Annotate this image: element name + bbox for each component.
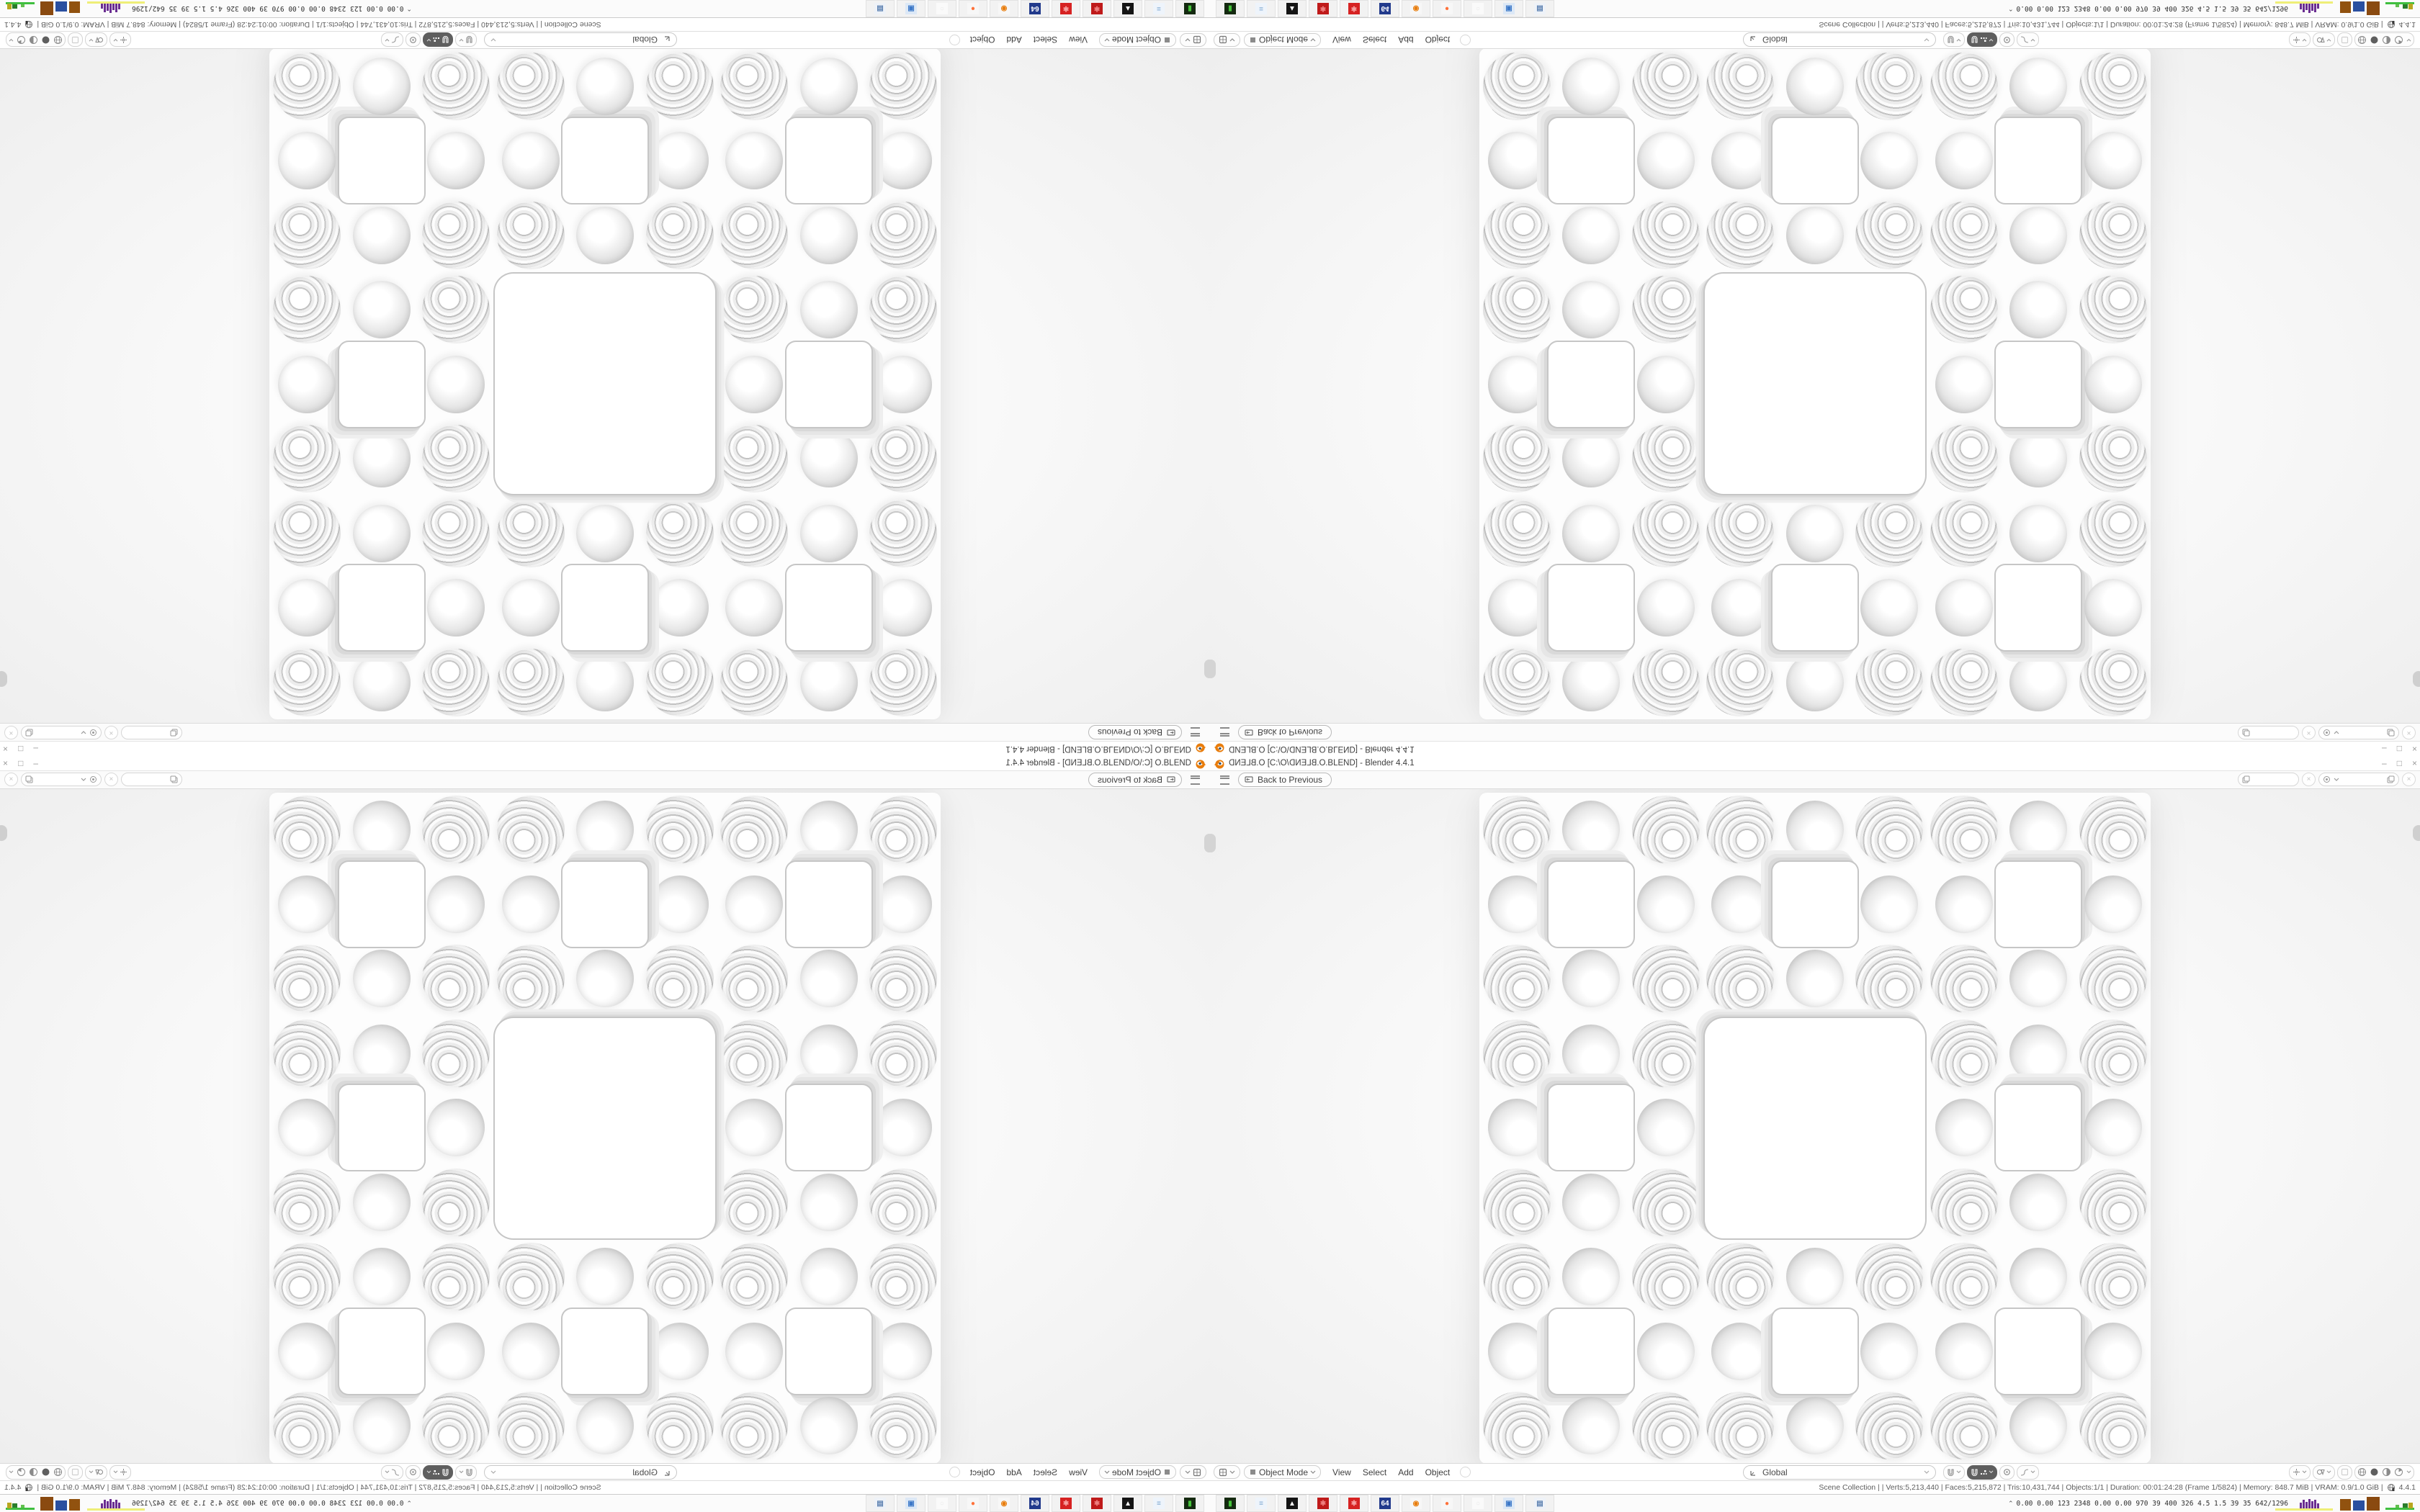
fractal-round-hole <box>353 281 411 338</box>
snap-toggle-button[interactable] <box>1943 1465 1965 1480</box>
firefox-icon[interactable]: ● <box>1433 0 1461 17</box>
view-layer-selector[interactable] <box>2318 773 2399 786</box>
fractal-ringed-hole <box>720 1243 788 1310</box>
menu-view[interactable]: View <box>1332 1467 1351 1477</box>
scene-close-button[interactable]: × <box>104 726 118 739</box>
chevron-down-icon <box>1989 38 1994 42</box>
notepad-icon[interactable]: ≡ <box>1247 1495 1276 1512</box>
calculator-icon[interactable]: ▤ <box>866 0 895 17</box>
notepad-icon-glyph: ≡ <box>1153 1498 1165 1509</box>
menu-add[interactable]: Add <box>1398 35 1413 45</box>
toggle-xray-button[interactable] <box>68 1465 83 1480</box>
fractal-ringed-hole <box>1632 425 1700 492</box>
orientation-label: Global <box>501 35 658 45</box>
snap-increment-icon <box>1980 37 1987 44</box>
blender-app-icon[interactable]: ◉ <box>1402 1495 1430 1512</box>
shading-rendered-icon[interactable] <box>17 35 26 45</box>
fractal-ringed-hole <box>1483 53 1551 120</box>
chevron-down-icon <box>1185 38 1191 42</box>
viewport-3d[interactable] <box>1210 49 2420 723</box>
fractal-round-hole <box>1786 950 1844 1007</box>
photo-app-icon[interactable]: ▲ <box>1113 1495 1142 1512</box>
notepad-icon[interactable]: ≡ <box>1247 0 1276 17</box>
close-button[interactable]: × <box>2412 742 2417 756</box>
sidebar-toggle-tab[interactable] <box>0 825 7 841</box>
scene-selector[interactable] <box>121 773 182 786</box>
shading-rendered-icon[interactable] <box>2394 1467 2403 1477</box>
restore-button[interactable]: □ <box>18 756 23 770</box>
photo-app-icon[interactable]: ▲ <box>1278 1495 1307 1512</box>
fractal-ringed-hole <box>869 649 937 716</box>
fractal-ringed-hole <box>422 1243 490 1310</box>
tray-expand-icon[interactable]: ⌃ <box>407 5 413 13</box>
view-layer-selector[interactable] <box>2318 726 2399 739</box>
scene-selector[interactable] <box>121 726 182 739</box>
transform-orientation-dropdown[interactable]: Global <box>1743 33 1936 48</box>
menu-object[interactable]: Object <box>970 1467 995 1477</box>
chevron-down-icon <box>385 1470 390 1474</box>
floppy-64-icon-glyph: 64 <box>1029 1498 1041 1509</box>
chevron-down-icon <box>385 38 390 42</box>
menu-hamburger-icon[interactable] <box>1220 775 1229 785</box>
fractal-ringed-hole <box>869 1020 937 1087</box>
red-gear2-icon[interactable]: ✱ <box>1052 0 1080 17</box>
sidebar-toggle-tab[interactable] <box>0 671 7 687</box>
menu-view[interactable]: View <box>1069 35 1088 45</box>
green-terminal-icon[interactable]: ▮ <box>1175 0 1204 17</box>
tray-expand-icon[interactable]: ⌃ <box>2008 1500 2014 1508</box>
fractal-ringed-hole <box>1632 1020 1700 1087</box>
proportional-circle-icon <box>2003 1468 2011 1476</box>
red-gear2-icon-glyph: ✱ <box>1348 1498 1360 1509</box>
fractal-round-hole <box>1488 132 1546 189</box>
snap-target-button[interactable] <box>423 1465 453 1480</box>
menu-object[interactable]: Object <box>1425 35 1451 45</box>
toolbar-toggle-tab[interactable] <box>1204 834 1210 852</box>
close-button[interactable]: × <box>2412 756 2417 770</box>
menu-add[interactable]: Add <box>1006 35 1021 45</box>
scene-name-field[interactable] <box>125 775 167 784</box>
show-gizmo-button[interactable] <box>2289 33 2311 48</box>
view-layer-close-button[interactable]: × <box>2402 726 2416 739</box>
menu-select[interactable]: Select <box>1363 35 1386 45</box>
blender-window: O.BLEND [C:\O\O.BLEND.BLEND] - Blender 4… <box>1210 0 2420 756</box>
snap-toggle-button[interactable] <box>455 33 477 48</box>
blender-app-icon[interactable]: ◉ <box>990 0 1018 17</box>
shading-wireframe-icon[interactable] <box>53 35 63 45</box>
fractal-square-hole <box>1773 118 1857 203</box>
menu-select[interactable]: Select <box>1034 35 1057 45</box>
menu-object[interactable]: Object <box>1425 1467 1451 1477</box>
mode-selector[interactable]: Object Mode <box>1099 33 1176 47</box>
proportional-edit-button[interactable] <box>1999 1465 2015 1480</box>
taskbar-app-icons: ▮≡▲✱✱64◉●○▣▤ <box>866 1495 1204 1512</box>
tray-purple-bars <box>2300 4 2319 13</box>
fractal-ringed-hole <box>422 1392 490 1459</box>
fractal-square-hole <box>1549 118 1633 203</box>
fractal-square-hole <box>1773 862 1857 947</box>
proportional-falloff-button[interactable] <box>381 33 403 48</box>
fractal-ringed-hole <box>1706 796 1774 863</box>
fractal-round-hole <box>2009 207 2067 264</box>
fractal-round-hole <box>874 579 932 636</box>
my-computer-icon-glyph: ▣ <box>905 1498 917 1509</box>
ghost-app-icon[interactable]: ○ <box>928 1495 956 1512</box>
menu-hamburger-icon[interactable] <box>1191 775 1200 785</box>
minimize-button[interactable]: – <box>2382 756 2387 770</box>
shading-material-icon[interactable] <box>2382 1467 2391 1477</box>
fractal-center-hole <box>1705 1018 1925 1238</box>
shading-wireframe-icon[interactable] <box>53 1467 63 1477</box>
tray-expand-icon[interactable]: ⌃ <box>2008 5 2014 13</box>
proportional-edit-button[interactable] <box>1999 33 2015 48</box>
menu-add[interactable]: Add <box>1398 1467 1413 1477</box>
transform-orientation-dropdown[interactable]: Global <box>1743 1465 1936 1480</box>
restore-button[interactable]: □ <box>2397 756 2402 770</box>
tray-expand-icon[interactable]: ⌃ <box>407 1500 413 1508</box>
tray-purple-bars <box>101 4 120 13</box>
back-to-previous-button[interactable]: Back to Previous <box>1238 773 1332 787</box>
menu-select[interactable]: Select <box>1363 1467 1386 1477</box>
orientation-axes-icon <box>1749 36 1758 45</box>
fractal-ringed-hole <box>497 500 565 567</box>
snap-toggle-button[interactable] <box>455 1465 477 1480</box>
firefox-icon[interactable]: ● <box>959 1495 987 1512</box>
fractal-round-hole <box>1786 1248 1844 1305</box>
toolbar-toggle-tab[interactable] <box>1210 660 1216 678</box>
my-computer-icon[interactable]: ▣ <box>1494 0 1523 17</box>
transform-orientation-dropdown[interactable]: Global <box>484 33 677 48</box>
calculator-icon[interactable]: ▤ <box>1525 1495 1554 1512</box>
blender-topbar: Back to Previous × <box>0 723 1210 741</box>
mode-selector[interactable]: Object Mode <box>1244 33 1321 47</box>
scene-selector[interactable] <box>2238 726 2299 739</box>
fractal-round-hole <box>353 801 411 858</box>
scene-selector[interactable] <box>2238 773 2299 786</box>
scene-icon <box>170 775 178 783</box>
notepad-icon[interactable]: ≡ <box>1144 1495 1173 1512</box>
sidebar-toggle-tab[interactable] <box>2413 825 2420 841</box>
blender-topbar: Back to Previous × <box>1210 723 2420 741</box>
fractal-square-hole <box>1773 1309 1857 1394</box>
red-gear-icon[interactable]: ✱ <box>1083 1495 1111 1512</box>
floppy-64-icon-glyph: 64 <box>1379 3 1391 14</box>
fractal-ringed-hole <box>1930 1169 1998 1236</box>
calculator-icon[interactable]: ▤ <box>866 1495 895 1512</box>
shading-material-icon[interactable] <box>29 1467 38 1477</box>
editor-type-button[interactable] <box>1180 1465 1206 1479</box>
tray-block-graphs <box>2340 0 2380 15</box>
minimize-button[interactable]: – <box>2382 742 2387 756</box>
fractal-ringed-hole <box>646 500 714 567</box>
toolbar-toggle-tab[interactable] <box>1210 834 1216 852</box>
magnet-icon <box>1947 36 1955 44</box>
fractal-round-hole <box>800 207 858 264</box>
fractal-round-hole <box>1637 876 1695 933</box>
show-gizmo-button[interactable] <box>2289 1465 2311 1480</box>
menu-select[interactable]: Select <box>1034 1467 1057 1477</box>
photo-app-icon[interactable]: ▲ <box>1113 0 1142 17</box>
fractal-round-hole <box>651 132 709 189</box>
fractal-round-hole <box>2009 505 2067 562</box>
red-gear-icon[interactable]: ✱ <box>1309 0 1337 17</box>
fractal-round-hole <box>800 1397 858 1454</box>
tray-block-graphs <box>40 0 80 15</box>
tray-block-0 <box>69 1499 80 1511</box>
mode-transfer-icon <box>1460 35 1471 45</box>
fractal-ringed-hole <box>1930 425 1998 492</box>
fractal-ringed-hole <box>869 1243 937 1310</box>
proportional-falloff-button[interactable] <box>2017 33 2039 48</box>
fractal-round-hole <box>800 654 858 711</box>
chevron-down-icon <box>1310 1470 1316 1475</box>
chevron-down-icon <box>2326 38 2331 42</box>
menu-object[interactable]: Object <box>970 35 995 45</box>
firefox-icon[interactable]: ● <box>1433 1495 1461 1512</box>
object-mode-icon <box>1249 36 1257 44</box>
snap-increment-icon <box>433 37 440 44</box>
show-overlays-button[interactable] <box>85 33 107 48</box>
minimize-button[interactable]: – <box>33 756 38 770</box>
red-gear-icon[interactable]: ✱ <box>1309 1495 1337 1512</box>
chevron-down-icon <box>1956 1470 1961 1474</box>
fractal-round-hole <box>576 654 634 711</box>
red-gear-icon[interactable]: ✱ <box>1083 0 1111 17</box>
fractal-ringed-hole <box>1632 649 1700 716</box>
tray-histogram-widget <box>84 0 126 17</box>
fractal-ringed-hole <box>1632 1169 1700 1236</box>
fractal-round-hole <box>725 876 783 933</box>
proportional-edit-button[interactable] <box>405 1465 421 1480</box>
restore-button[interactable]: □ <box>18 742 23 756</box>
fractal-round-hole <box>353 505 411 562</box>
viewport-header: Object Mode View Select Add Object Globa… <box>0 1463 1210 1480</box>
shading-mode-group <box>6 33 66 48</box>
viewport-header: Object Mode View Select Add Object Globa… <box>1210 32 2420 49</box>
blender-version: 4.4.1 <box>2399 1483 2416 1492</box>
green-terminal-icon[interactable]: ▮ <box>1216 1495 1245 1512</box>
fractal-round-hole <box>502 579 560 636</box>
red-gear2-icon[interactable]: ✱ <box>1340 1495 1368 1512</box>
proportional-falloff-button[interactable] <box>2017 1465 2039 1480</box>
tray-histogram-widget <box>84 1495 126 1512</box>
fractal-round-hole <box>800 505 858 562</box>
toolbar-toggle-tab[interactable] <box>1204 660 1210 678</box>
fractal-round-hole <box>278 876 336 933</box>
blender-app-icon-glyph: ◉ <box>1410 1498 1422 1509</box>
shading-material-icon[interactable] <box>2382 35 2391 45</box>
snap-target-button[interactable] <box>1967 1465 1997 1480</box>
firefox-icon-glyph: ● <box>967 1498 979 1509</box>
shading-rendered-icon[interactable] <box>17 1467 26 1477</box>
show-overlays-button[interactable] <box>2313 1465 2335 1480</box>
fractal-round-hole <box>576 207 634 264</box>
red-gear2-icon[interactable]: ✱ <box>1340 0 1368 17</box>
editor-type-button[interactable] <box>1214 33 1240 47</box>
fractal-round-hole <box>576 505 634 562</box>
view-layer-close-button[interactable]: × <box>2402 773 2416 786</box>
fractal-ringed-hole <box>1706 945 1774 1012</box>
restore-button[interactable]: □ <box>2397 742 2402 756</box>
chevron-down-icon <box>2334 778 2339 782</box>
floppy-64-icon[interactable]: 64 <box>1021 1495 1049 1512</box>
fractal-round-hole <box>353 1397 411 1454</box>
menu-view[interactable]: View <box>1069 1467 1088 1477</box>
blender-app-icon[interactable]: ◉ <box>1402 0 1430 17</box>
blender-app-icon[interactable]: ◉ <box>990 1495 1018 1512</box>
fractal-square-hole <box>1996 1309 2081 1394</box>
fractal-ringed-hole <box>1930 1020 1998 1087</box>
shading-wireframe-icon[interactable] <box>2357 1467 2367 1477</box>
scene-close-button[interactable]: × <box>2302 726 2316 739</box>
fractal-ringed-hole <box>720 1169 788 1236</box>
blender-topbar: Back to Previous × <box>0 771 1210 789</box>
floppy-64-icon[interactable]: 64 <box>1021 0 1049 17</box>
view-layer-name-field[interactable] <box>2342 729 2384 737</box>
fractal-round-hole <box>1562 281 1620 338</box>
snap-increment-icon <box>1980 1469 1987 1476</box>
red-gear2-icon[interactable]: ✱ <box>1052 1495 1080 1512</box>
fractal-round-hole <box>576 801 634 858</box>
minimize-button[interactable]: – <box>33 742 38 756</box>
back-to-previous-button[interactable]: Back to Previous <box>1238 725 1332 739</box>
show-overlays-button[interactable] <box>85 1465 107 1480</box>
photo-app-icon[interactable]: ▲ <box>1278 0 1307 17</box>
new-layer-icon <box>25 775 33 783</box>
show-gizmo-button[interactable] <box>109 33 131 48</box>
fractal-ringed-hole <box>2079 1392 2147 1459</box>
fractal-round-hole <box>278 1099 336 1156</box>
notepad-icon[interactable]: ≡ <box>1144 0 1173 17</box>
scene-close-button[interactable]: × <box>2302 773 2316 786</box>
toggle-xray-button[interactable] <box>68 33 83 48</box>
fractal-ringed-hole <box>1930 945 1998 1012</box>
green-terminal-icon[interactable]: ▮ <box>1175 1495 1204 1512</box>
ghost-app-icon[interactable]: ○ <box>928 0 956 17</box>
close-button[interactable]: × <box>3 756 8 770</box>
shading-solid-icon[interactable] <box>41 35 50 45</box>
proportional-edit-button[interactable] <box>405 33 421 48</box>
fractal-center-hole <box>1705 274 1925 495</box>
shading-solid-icon[interactable] <box>2370 35 2379 45</box>
mode-selector[interactable]: Object Mode <box>1244 1465 1321 1479</box>
fractal-ringed-hole <box>1706 1392 1774 1459</box>
blender-version: 4.4.1 <box>2399 20 2416 29</box>
editor-type-button[interactable] <box>1214 1465 1240 1479</box>
red-gear-icon-glyph: ✱ <box>1317 3 1329 14</box>
shading-rendered-icon[interactable] <box>2394 35 2403 45</box>
mode-selector[interactable]: Object Mode <box>1099 1465 1176 1479</box>
screen-back-icon <box>1245 776 1253 783</box>
fractal-round-hole <box>1711 876 1769 933</box>
view-layer-close-button[interactable]: × <box>4 726 18 739</box>
chevron-down-icon <box>2030 38 2035 42</box>
tray-block-1 <box>55 1 67 12</box>
magnet-active-icon <box>442 36 449 44</box>
calculator-icon-glyph: ▤ <box>1534 3 1546 14</box>
mode-label: Object Mode <box>1112 1467 1161 1477</box>
scene-name-field[interactable] <box>125 729 167 737</box>
back-to-previous-button[interactable]: Back to Previous <box>1088 725 1182 739</box>
fractal-square-hole <box>1549 342 1633 427</box>
calculator-icon[interactable]: ▤ <box>1525 0 1554 17</box>
scene-name-field[interactable] <box>2253 729 2295 737</box>
sidebar-toggle-tab[interactable] <box>2413 671 2420 687</box>
viewport-3d[interactable] <box>1210 789 2420 1463</box>
firefox-icon[interactable]: ● <box>959 0 987 17</box>
fractal-round-hole <box>353 430 411 487</box>
fractal-round-hole <box>1488 876 1546 933</box>
my-computer-icon[interactable]: ▣ <box>1494 1495 1523 1512</box>
menu-hamburger-icon[interactable] <box>1220 728 1229 737</box>
fractal-square-hole <box>1549 1085 1633 1170</box>
ghost-app-icon[interactable]: ○ <box>1464 0 1492 17</box>
shading-solid-icon[interactable] <box>41 1467 50 1477</box>
fractal-round-hole <box>874 1099 932 1156</box>
floppy-64-icon[interactable]: 64 <box>1371 1495 1399 1512</box>
fractal-round-hole <box>278 579 336 636</box>
tray-block-graphs <box>2340 1497 2380 1512</box>
ghost-app-icon[interactable]: ○ <box>1464 1495 1492 1512</box>
transform-orientation-dropdown[interactable]: Global <box>484 1465 677 1480</box>
view-layer-name-field[interactable] <box>36 775 78 784</box>
fractal-ringed-hole <box>2079 202 2147 269</box>
viewport-3d[interactable] <box>0 49 1210 723</box>
my-computer-icon[interactable]: ▣ <box>897 0 926 17</box>
fractal-ringed-hole <box>1855 649 1923 716</box>
close-button[interactable]: × <box>3 742 8 756</box>
show-overlays-button[interactable] <box>2313 33 2335 48</box>
fractal-square-hole <box>339 565 424 650</box>
floppy-64-icon[interactable]: 64 <box>1371 0 1399 17</box>
shading-material-icon[interactable] <box>29 35 38 45</box>
status-stats-text: Scene Collection | | Verts:5,213,440 | F… <box>37 20 601 29</box>
editor-type-button[interactable] <box>1180 33 1206 47</box>
fractal-ringed-hole <box>497 945 565 1012</box>
shading-wireframe-icon[interactable] <box>2357 35 2367 45</box>
scene-name-field[interactable] <box>2253 775 2295 784</box>
view-layer-name-field[interactable] <box>2342 775 2384 784</box>
view-layer-selector[interactable] <box>21 726 102 739</box>
snap-toggle-button[interactable] <box>1943 33 1965 48</box>
menu-view[interactable]: View <box>1332 35 1351 45</box>
fractal-ringed-hole <box>1855 53 1923 120</box>
snap-target-button[interactable] <box>423 33 453 48</box>
view-layer-close-button[interactable]: × <box>4 773 18 786</box>
toggle-xray-button[interactable] <box>2337 1465 2352 1480</box>
new-layer-icon <box>2387 729 2395 737</box>
scene-close-button[interactable]: × <box>104 773 118 786</box>
green-terminal-icon[interactable]: ▮ <box>1216 0 1245 17</box>
status-bar: Scene Collection | | Verts:5,213,440 | F… <box>1210 18 2420 32</box>
show-gizmo-button[interactable] <box>109 1465 131 1480</box>
my-computer-icon[interactable]: ▣ <box>897 1495 926 1512</box>
view-layer-selector[interactable] <box>21 773 102 786</box>
menu-hamburger-icon[interactable] <box>1191 728 1200 737</box>
shading-solid-icon[interactable] <box>2370 1467 2379 1477</box>
snap-target-button[interactable] <box>1967 33 1997 48</box>
view-layer-icon <box>2323 775 2331 783</box>
viewport-3d[interactable] <box>0 789 1210 1463</box>
menu-add[interactable]: Add <box>1006 1467 1021 1477</box>
toggle-xray-button[interactable] <box>2337 33 2352 48</box>
magnet-icon <box>465 36 473 44</box>
fractal-square-hole <box>1996 565 2081 650</box>
back-to-previous-button[interactable]: Back to Previous <box>1088 773 1182 787</box>
view-layer-name-field[interactable] <box>36 729 78 737</box>
fractal-round-hole <box>1786 207 1844 264</box>
proportional-falloff-button[interactable] <box>381 1465 403 1480</box>
